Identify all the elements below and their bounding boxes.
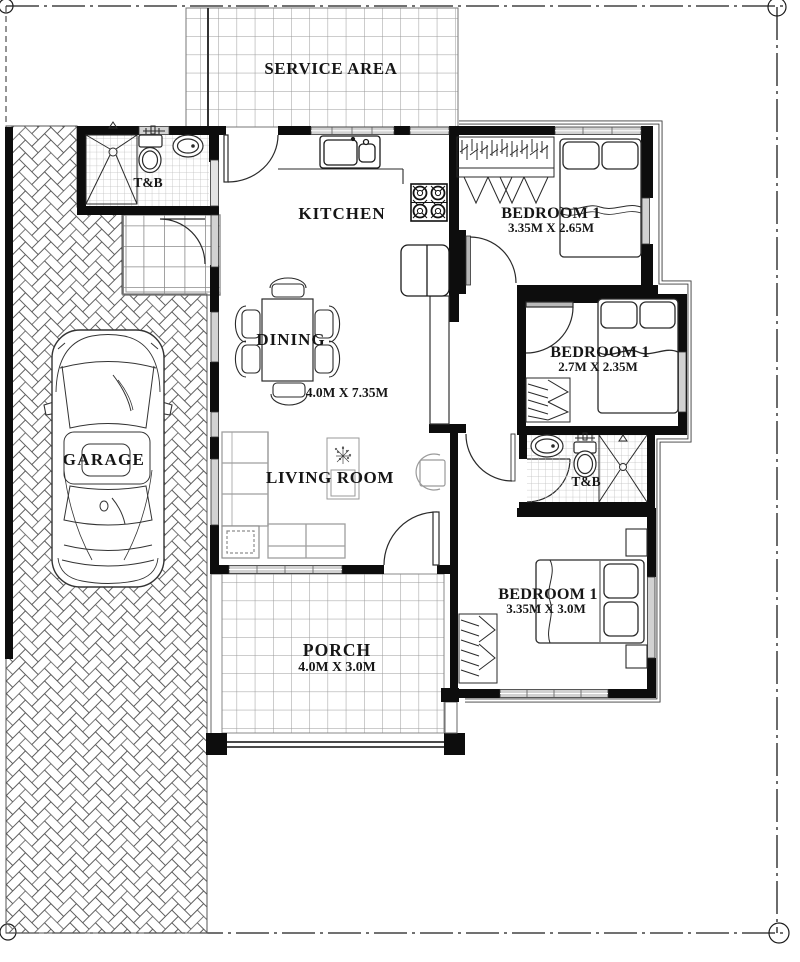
- svg-text:2.7M X 2.35M: 2.7M X 2.35M: [558, 359, 637, 374]
- svg-text:4.0M X 3.0M: 4.0M X 3.0M: [298, 659, 375, 674]
- svg-text:3.35M X 3.0M: 3.35M X 3.0M: [506, 601, 585, 616]
- svg-text:DINING: DINING: [256, 330, 325, 349]
- svg-text:T&B: T&B: [133, 175, 162, 190]
- svg-text:LIVING ROOM: LIVING ROOM: [266, 468, 394, 487]
- svg-text:KITCHEN: KITCHEN: [298, 204, 385, 223]
- svg-text:SERVICE AREA: SERVICE AREA: [264, 59, 397, 78]
- svg-text:GARAGE: GARAGE: [63, 450, 145, 469]
- svg-text:4.0M X 7.35M: 4.0M X 7.35M: [306, 385, 389, 400]
- svg-text:3.35M X 2.65M: 3.35M X 2.65M: [508, 220, 594, 235]
- svg-text:T&B: T&B: [571, 474, 600, 489]
- svg-text:PORCH: PORCH: [303, 640, 371, 660]
